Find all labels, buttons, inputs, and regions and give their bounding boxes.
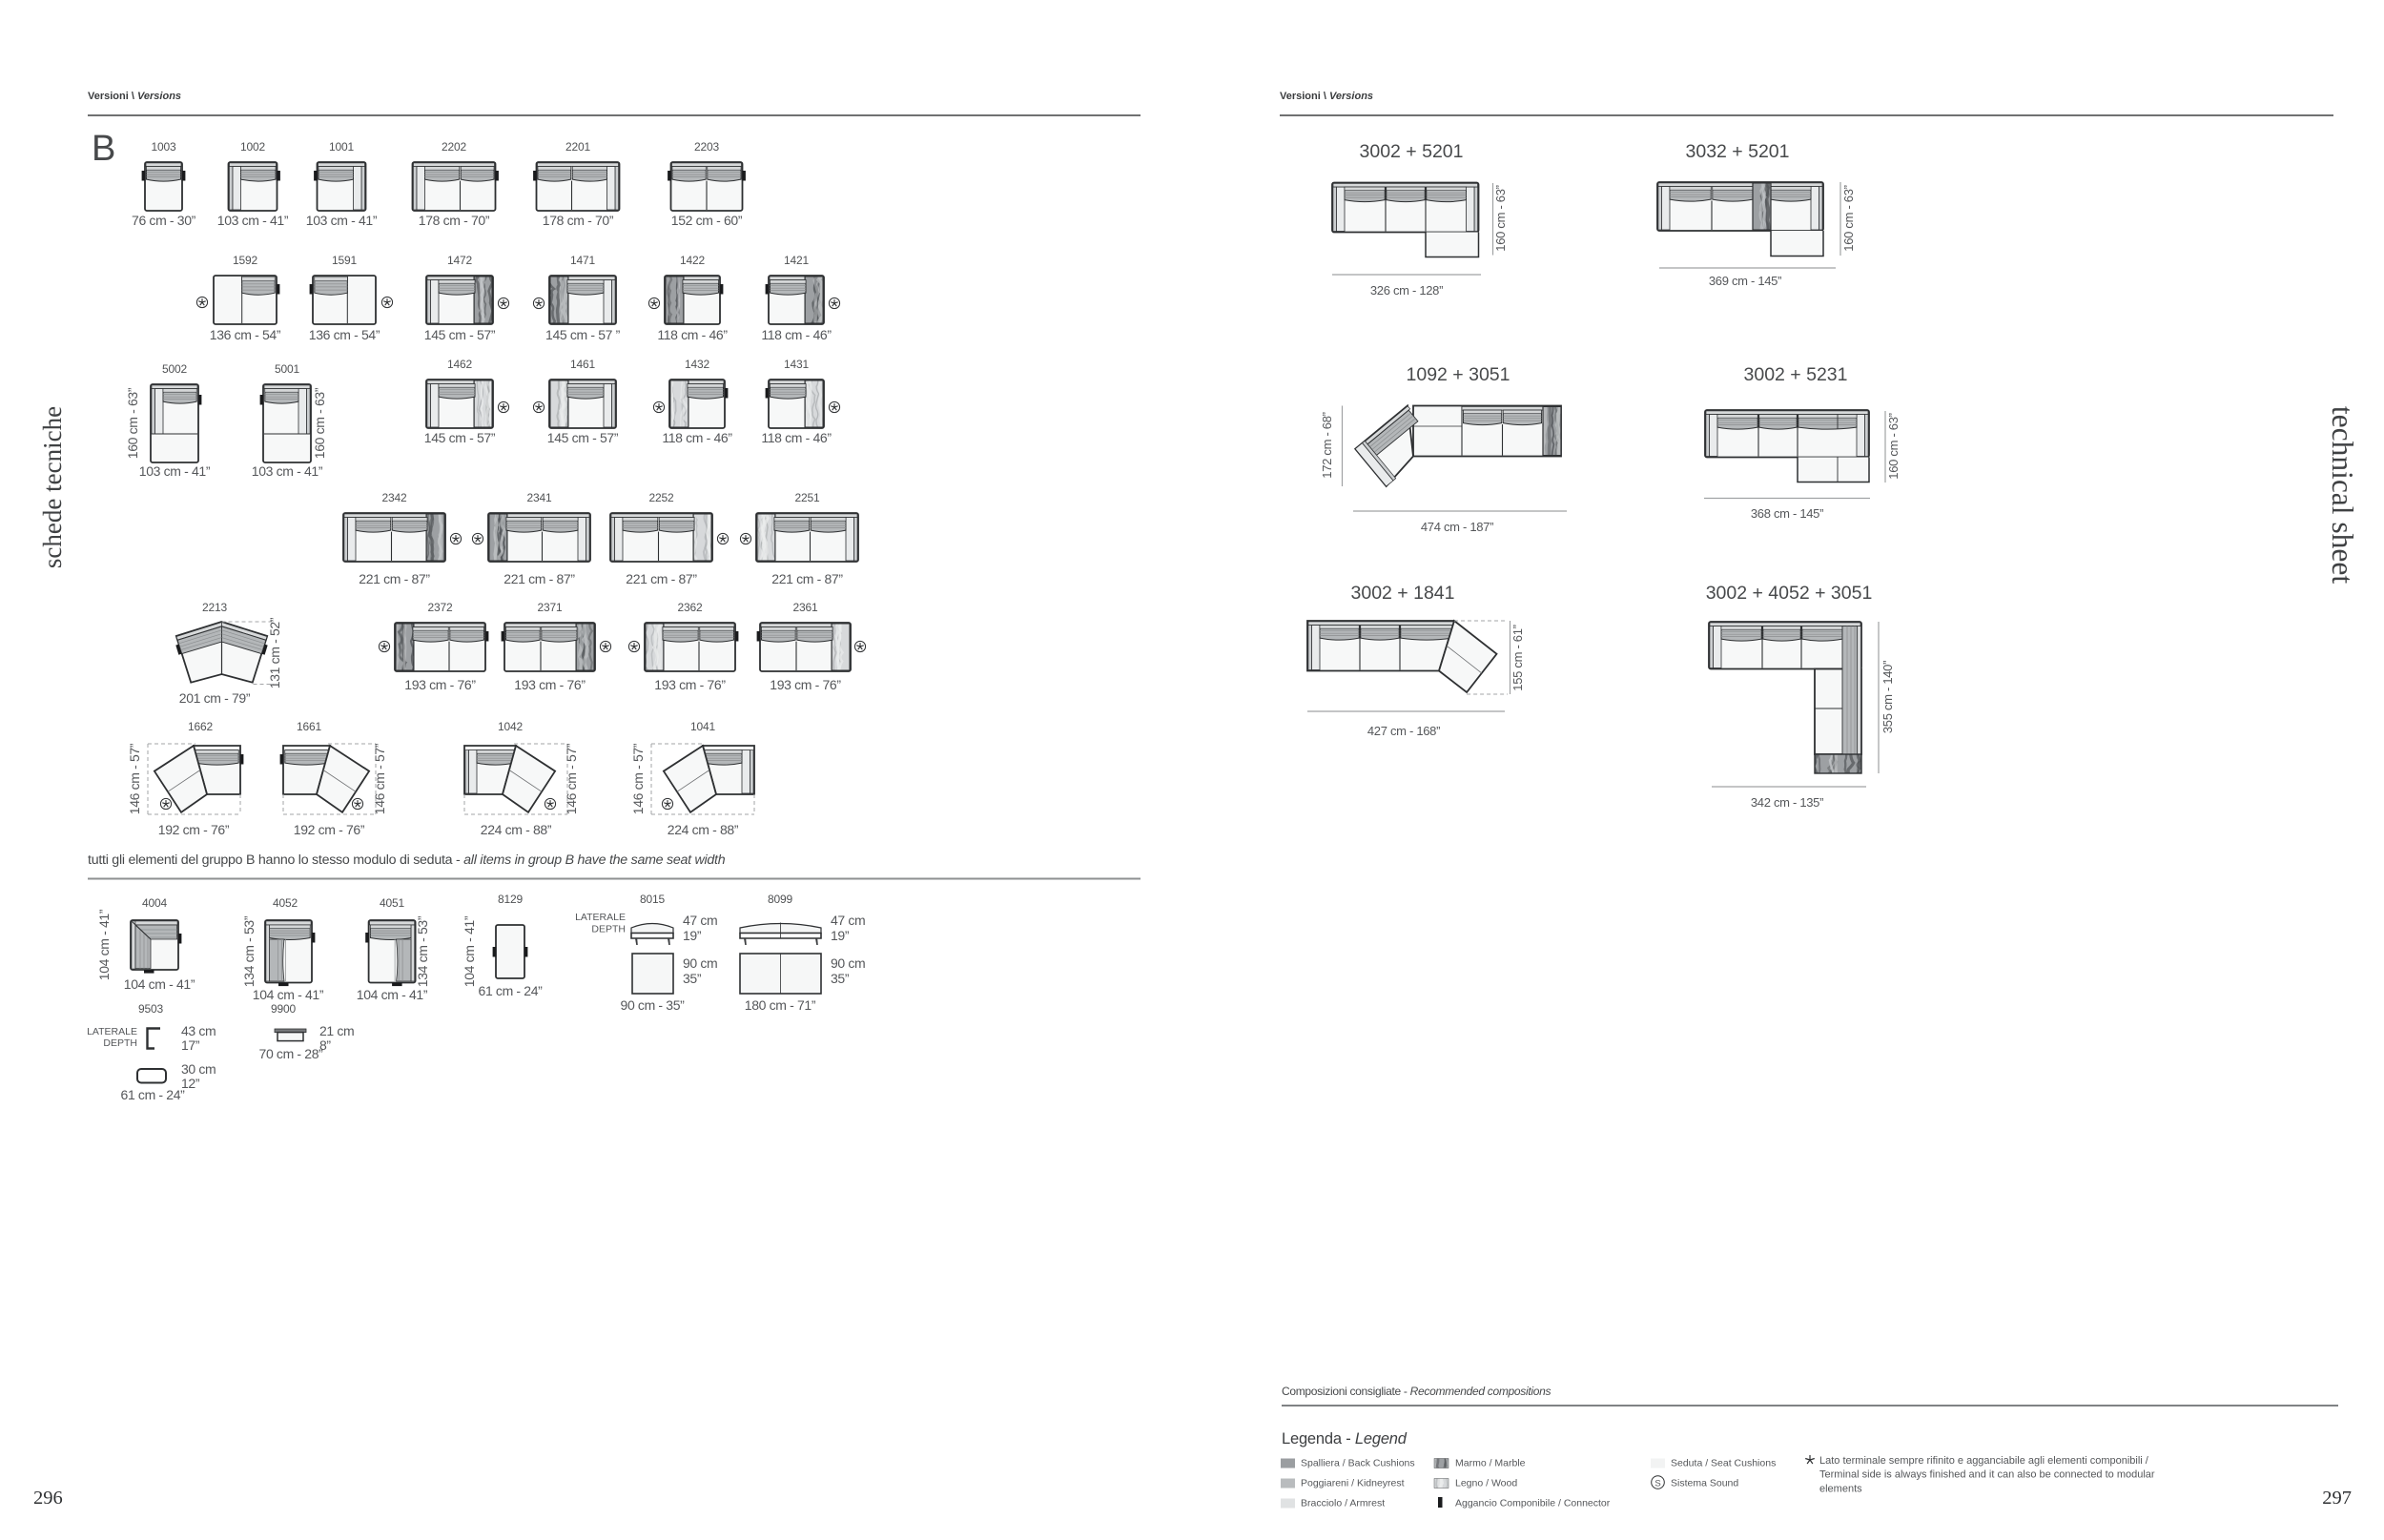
svg-text:2341: 2341 [527, 491, 552, 504]
svg-text:Legenda - Legend: Legenda - Legend [1282, 1430, 1408, 1448]
svg-text:3002 + 5231: 3002 + 5231 [1744, 364, 1848, 385]
svg-text:2371: 2371 [538, 601, 563, 614]
svg-text:145 cm - 57”: 145 cm - 57” [547, 430, 619, 445]
svg-text:2252: 2252 [649, 491, 674, 504]
svg-text:3002 + 5201: 3002 + 5201 [1360, 141, 1464, 162]
svg-text:Legno / Wood: Legno / Wood [1455, 1478, 1517, 1489]
svg-text:118 cm - 46”: 118 cm - 46” [761, 430, 832, 445]
svg-text:76 cm - 30”: 76 cm - 30” [132, 213, 196, 228]
svg-text:1431: 1431 [784, 358, 809, 371]
svg-text:LATERALE: LATERALE [87, 1026, 137, 1037]
svg-text:103 cm - 41”: 103 cm - 41” [217, 213, 289, 228]
svg-text:103 cm - 41”: 103 cm - 41” [139, 463, 211, 479]
svg-text:1472: 1472 [447, 254, 472, 267]
svg-text:104 cm - 41”: 104 cm - 41” [124, 976, 195, 992]
svg-text:1462: 1462 [447, 358, 472, 371]
svg-text:30 cm: 30 cm [181, 1061, 216, 1077]
svg-text:221 cm - 87”: 221 cm - 87” [504, 571, 575, 586]
svg-text:136 cm - 54”: 136 cm - 54” [309, 327, 380, 342]
svg-text:schede tecniche: schede tecniche [38, 406, 67, 568]
svg-text:178 cm - 70”: 178 cm - 70” [419, 213, 490, 228]
svg-text:224 cm - 88”: 224 cm - 88” [668, 822, 739, 837]
svg-text:Versioni \ Versions: Versioni \ Versions [88, 91, 181, 102]
svg-text:2203: 2203 [694, 140, 719, 154]
svg-text:136 cm - 54”: 136 cm - 54” [210, 327, 281, 342]
svg-text:104 cm - 41”: 104 cm - 41” [357, 987, 428, 1002]
svg-text:LATERALE: LATERALE [575, 912, 626, 923]
svg-text:Marmo / Marble: Marmo / Marble [1455, 1458, 1526, 1469]
svg-text:160 cm - 63”: 160 cm - 63” [1841, 185, 1856, 251]
svg-text:145 cm - 57 ”: 145 cm - 57 ” [545, 327, 621, 342]
svg-text:1432: 1432 [685, 358, 709, 371]
svg-text:134 cm - 53”: 134 cm - 53” [415, 915, 430, 987]
svg-text:146 cm - 57”: 146 cm - 57” [630, 743, 646, 814]
svg-text:Aggancio Componibile / Connect: Aggancio Componibile / Connector [1455, 1498, 1611, 1509]
svg-text:224 cm - 88”: 224 cm - 88” [481, 822, 552, 837]
svg-text:368 cm - 145”: 368 cm - 145” [1751, 506, 1823, 521]
svg-text:180 cm - 71”: 180 cm - 71” [745, 997, 816, 1013]
svg-text:146 cm - 57”: 146 cm - 57” [127, 743, 142, 814]
svg-text:221 cm - 87”: 221 cm - 87” [359, 571, 430, 586]
svg-text:4051: 4051 [380, 896, 404, 910]
svg-text:1591: 1591 [332, 254, 357, 267]
svg-text:90 cm: 90 cm [683, 955, 717, 971]
svg-text:5001: 5001 [275, 362, 299, 376]
svg-text:47 cm: 47 cm [831, 913, 865, 928]
svg-text:35”: 35” [831, 971, 850, 986]
svg-text:Lato terminale sempre rifinito: Lato terminale sempre rifinito e agganci… [1819, 1455, 2149, 1467]
svg-text:1003: 1003 [152, 140, 176, 154]
svg-text:47 cm: 47 cm [683, 913, 717, 928]
svg-text:19”: 19” [683, 928, 702, 943]
svg-text:1662: 1662 [188, 720, 213, 733]
svg-text:160 cm - 63”: 160 cm - 63” [1886, 413, 1901, 479]
svg-text:61 cm - 24”: 61 cm - 24” [121, 1087, 186, 1102]
svg-text:1041: 1041 [690, 720, 715, 733]
svg-text:160 cm - 63”: 160 cm - 63” [312, 387, 327, 459]
svg-text:Versioni \ Versions: Versioni \ Versions [1280, 91, 1373, 102]
svg-text:192 cm - 76”: 192 cm - 76” [294, 822, 365, 837]
svg-text:90 cm: 90 cm [831, 955, 865, 971]
svg-text:Terminal side is always finish: Terminal side is always finished and it … [1819, 1469, 2155, 1481]
svg-text:474 cm - 187”: 474 cm - 187” [1421, 520, 1493, 534]
svg-text:5002: 5002 [162, 362, 187, 376]
svg-text:221 cm - 87”: 221 cm - 87” [771, 571, 843, 586]
svg-text:tutti gli elementi del gruppo: tutti gli elementi del gruppo B hanno lo… [88, 852, 726, 868]
svg-text:1471: 1471 [570, 254, 595, 267]
svg-text:17”: 17” [181, 1037, 200, 1053]
svg-text:369 cm - 145”: 369 cm - 145” [1709, 274, 1781, 288]
svg-text:192 cm - 76”: 192 cm - 76” [158, 822, 230, 837]
svg-text:193 cm - 76”: 193 cm - 76” [404, 677, 476, 692]
svg-text:19”: 19” [831, 928, 850, 943]
svg-text:1001: 1001 [329, 140, 354, 154]
svg-text:178 cm - 70”: 178 cm - 70” [543, 213, 614, 228]
svg-text:1421: 1421 [784, 254, 809, 267]
svg-text:90 cm - 35”: 90 cm - 35” [621, 997, 686, 1013]
svg-text:2251: 2251 [795, 491, 820, 504]
svg-text:3032 + 5201: 3032 + 5201 [1686, 141, 1790, 162]
svg-text:297: 297 [2322, 1488, 2352, 1509]
svg-text:technical sheet: technical sheet [2326, 406, 2359, 585]
svg-text:1422: 1422 [680, 254, 705, 267]
svg-text:1461: 1461 [570, 358, 595, 371]
svg-text:1661: 1661 [297, 720, 321, 733]
svg-text:4004: 4004 [142, 896, 167, 910]
svg-text:3002 + 4052 + 3051: 3002 + 4052 + 3051 [1706, 583, 1873, 604]
svg-text:8099: 8099 [768, 893, 792, 906]
svg-text:70 cm - 28”: 70 cm - 28” [259, 1046, 324, 1061]
svg-text:296: 296 [33, 1488, 63, 1509]
svg-text:21 cm: 21 cm [319, 1023, 354, 1038]
svg-text:103 cm - 41”: 103 cm - 41” [252, 463, 323, 479]
svg-text:Poggiareni / Kidneyrest: Poggiareni / Kidneyrest [1301, 1478, 1405, 1489]
svg-text:145 cm - 57”: 145 cm - 57” [424, 430, 496, 445]
svg-text:145 cm - 57”: 145 cm - 57” [424, 327, 496, 342]
svg-text:2342: 2342 [382, 491, 407, 504]
svg-text:2372: 2372 [428, 601, 453, 614]
svg-text:Composizioni consigliate - Rec: Composizioni consigliate - Recommended c… [1282, 1385, 1551, 1398]
svg-text:104 cm - 41”: 104 cm - 41” [96, 909, 112, 980]
svg-text:Spalliera / Back Cushions: Spalliera / Back Cushions [1301, 1458, 1415, 1469]
svg-text:1042: 1042 [498, 720, 523, 733]
svg-text:152 cm - 60”: 152 cm - 60” [671, 213, 743, 228]
svg-text:160 cm - 63”: 160 cm - 63” [1493, 185, 1508, 251]
svg-text:1592: 1592 [233, 254, 257, 267]
svg-text:1092 + 3051: 1092 + 3051 [1407, 364, 1511, 385]
svg-text:221 cm - 87”: 221 cm - 87” [626, 571, 697, 586]
svg-text:8129: 8129 [498, 893, 523, 906]
svg-text:326 cm - 128”: 326 cm - 128” [1370, 283, 1443, 298]
svg-text:4052: 4052 [273, 896, 298, 910]
svg-text:427 cm - 168”: 427 cm - 168” [1367, 724, 1440, 738]
svg-text:172 cm - 68”: 172 cm - 68” [1320, 412, 1334, 478]
svg-text:201 cm - 79”: 201 cm - 79” [179, 690, 251, 706]
svg-text:DEPTH: DEPTH [103, 1037, 137, 1049]
svg-text:3002 + 1841: 3002 + 1841 [1351, 583, 1455, 604]
svg-text:8015: 8015 [640, 893, 665, 906]
svg-text:2213: 2213 [202, 601, 227, 614]
svg-text:1002: 1002 [240, 140, 265, 154]
svg-text:elements: elements [1819, 1483, 1862, 1494]
svg-text:2201: 2201 [565, 140, 590, 154]
svg-text:155 cm - 61”: 155 cm - 61” [1511, 625, 1525, 690]
svg-text:131 cm - 52”: 131 cm - 52” [267, 617, 282, 688]
svg-text:146 cm - 57”: 146 cm - 57” [564, 743, 579, 814]
svg-text:103 cm - 41”: 103 cm - 41” [306, 213, 378, 228]
svg-text:160 cm - 63”: 160 cm - 63” [125, 387, 140, 459]
svg-text:35”: 35” [683, 971, 702, 986]
svg-text:Seduta / Seat Cushions: Seduta / Seat Cushions [1671, 1458, 1776, 1469]
svg-text:9503: 9503 [138, 1002, 163, 1016]
svg-text:118 cm - 46”: 118 cm - 46” [657, 327, 728, 342]
svg-text:193 cm - 76”: 193 cm - 76” [654, 677, 726, 692]
svg-text:342 cm - 135”: 342 cm - 135” [1751, 795, 1823, 810]
svg-text:Bracciolo / Armrest: Bracciolo / Armrest [1301, 1498, 1385, 1509]
svg-text:193 cm - 76”: 193 cm - 76” [770, 677, 841, 692]
svg-text:118 cm - 46”: 118 cm - 46” [662, 430, 732, 445]
svg-text:9900: 9900 [271, 1002, 296, 1016]
svg-text:2361: 2361 [793, 601, 818, 614]
svg-text:146 cm - 57”: 146 cm - 57” [372, 743, 387, 814]
svg-text:355 cm - 140”: 355 cm - 140” [1880, 661, 1895, 733]
svg-text:B: B [92, 129, 115, 169]
svg-text:104 cm - 41”: 104 cm - 41” [253, 987, 324, 1002]
svg-text:104 cm - 41”: 104 cm - 41” [462, 915, 477, 987]
svg-text:43 cm: 43 cm [181, 1023, 216, 1038]
svg-text:DEPTH: DEPTH [591, 924, 626, 935]
svg-text:2202: 2202 [442, 140, 466, 154]
svg-text:118 cm - 46”: 118 cm - 46” [761, 327, 832, 342]
svg-text:Sistema Sound: Sistema Sound [1671, 1478, 1738, 1489]
svg-text:2362: 2362 [678, 601, 703, 614]
svg-text:61 cm - 24”: 61 cm - 24” [479, 983, 544, 998]
svg-text:S: S [1654, 1479, 1660, 1489]
svg-text:134 cm - 53”: 134 cm - 53” [241, 915, 257, 987]
svg-text:193 cm - 76”: 193 cm - 76” [514, 677, 586, 692]
